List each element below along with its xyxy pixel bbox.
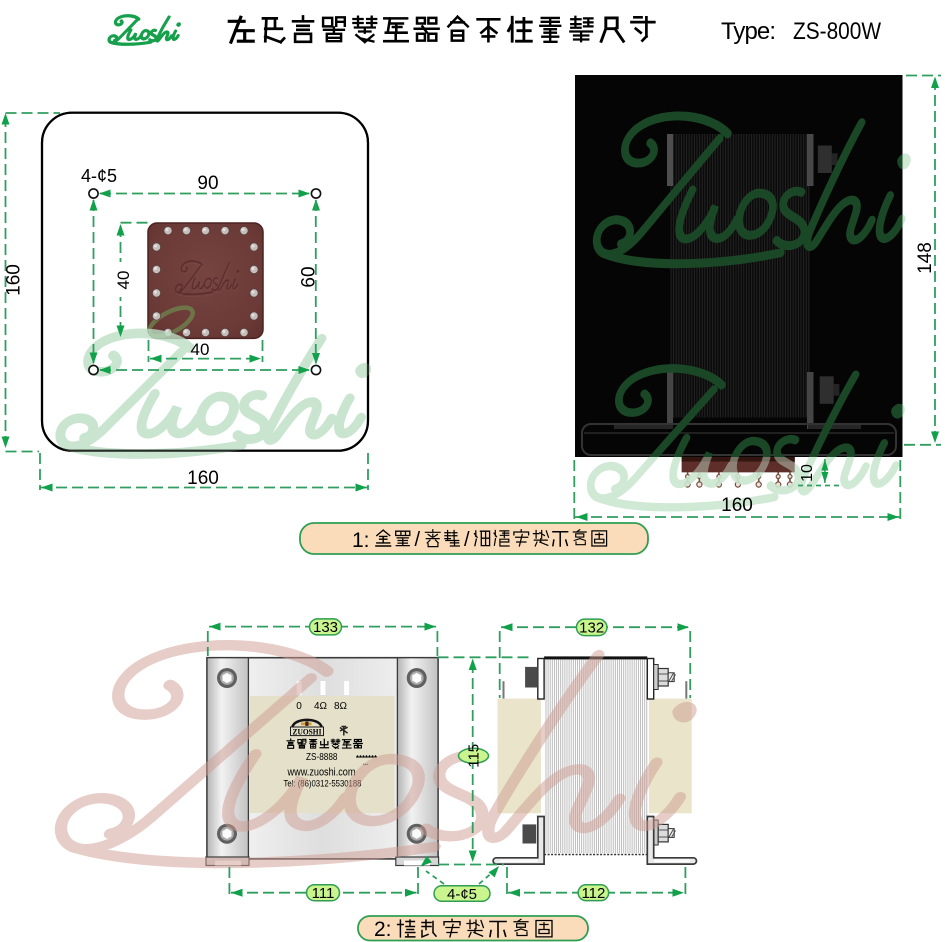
svg-text:40: 40 (191, 340, 210, 359)
svg-text:160: 160 (187, 468, 219, 489)
svg-text:/: / (464, 529, 470, 551)
svg-text:Type:: Type: (721, 18, 776, 45)
svg-text:115: 115 (466, 744, 483, 768)
svg-text:160: 160 (721, 495, 753, 516)
svg-text:0: 0 (296, 701, 302, 712)
svg-text:ZS-8888: ZS-8888 (306, 752, 338, 763)
svg-text:60: 60 (299, 266, 320, 287)
svg-text:ZS-800W: ZS-800W (793, 18, 881, 45)
svg-text:132: 132 (579, 620, 604, 637)
svg-text:40: 40 (114, 271, 133, 290)
svg-text:/: / (415, 529, 421, 551)
svg-text:4-¢5: 4-¢5 (81, 166, 117, 186)
svg-text:ZUOSHI: ZUOSHI (293, 727, 322, 736)
svg-text:148: 148 (915, 242, 936, 274)
svg-text:4-¢5: 4-¢5 (447, 886, 477, 903)
svg-text:1:: 1: (352, 529, 370, 552)
svg-text:160: 160 (4, 264, 25, 296)
svg-text:133: 133 (313, 619, 338, 636)
svg-text:112: 112 (581, 885, 605, 902)
svg-text:4Ω: 4Ω (314, 701, 328, 712)
svg-text:111: 111 (312, 885, 335, 902)
svg-text:90: 90 (197, 173, 218, 194)
svg-text:8Ω: 8Ω (334, 701, 348, 712)
svg-text:10: 10 (799, 464, 816, 482)
svg-text:2:: 2: (374, 918, 392, 941)
